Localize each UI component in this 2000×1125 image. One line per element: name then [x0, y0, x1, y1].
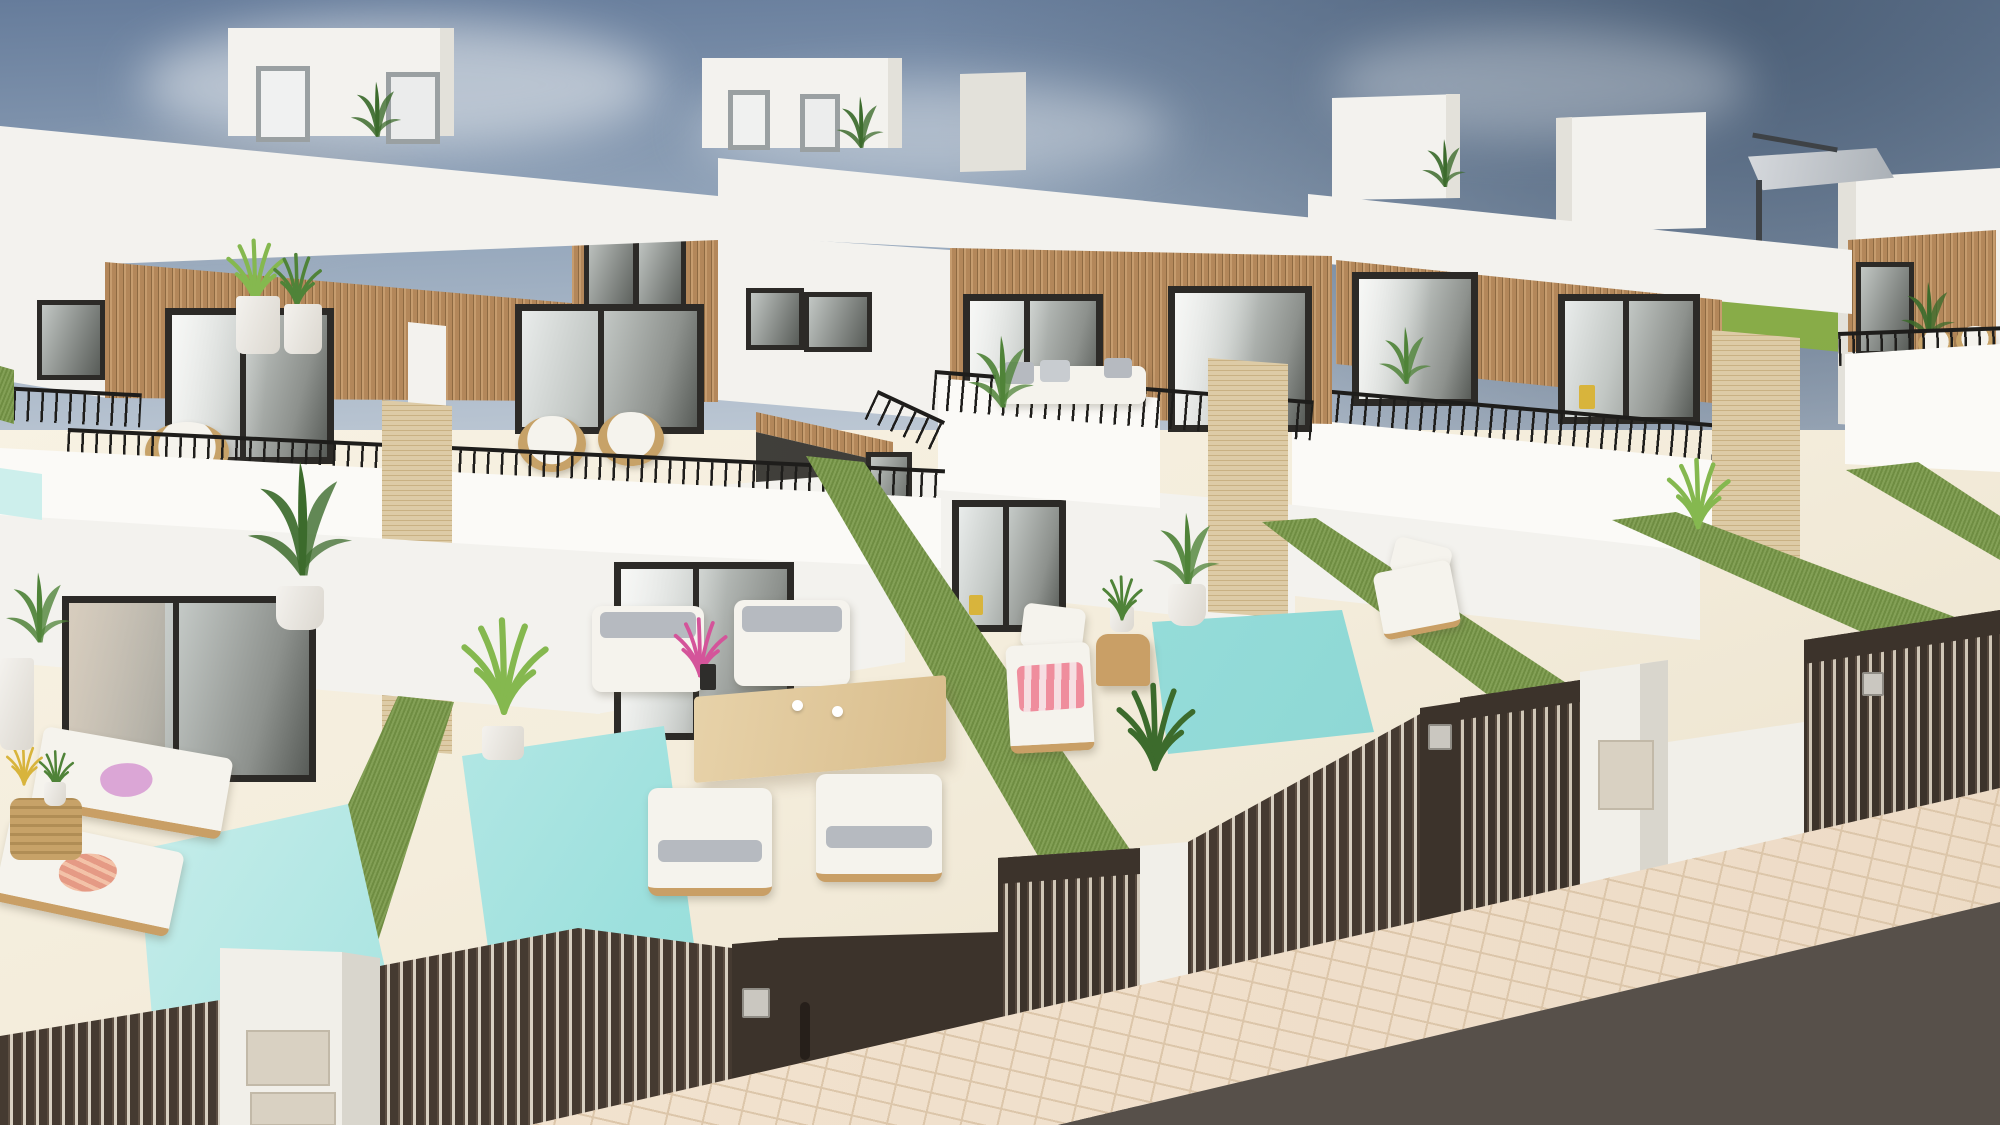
flower-vase [700, 664, 716, 690]
house3-window-right [1558, 294, 1700, 424]
window-mullion [1003, 507, 1009, 625]
palm-by-gate-icon [1108, 664, 1202, 786]
letterbox-panel [250, 1092, 336, 1125]
planter-box [236, 296, 280, 354]
parasol-mast [1756, 180, 1762, 242]
house3-balcony-plant-icon [1374, 312, 1436, 396]
house1-window-right [515, 304, 704, 434]
banana-plant-icon [238, 432, 362, 600]
chair-pillow [826, 826, 932, 848]
coffee-cup [792, 700, 803, 711]
striped-towel [1016, 662, 1085, 712]
sofa-pillow [1040, 360, 1070, 382]
tall-planter [0, 658, 34, 750]
dining-chair-front [816, 774, 942, 882]
dining-chair-front [648, 788, 772, 896]
dining-chair [734, 600, 850, 686]
planter-box [284, 304, 322, 354]
house2-terrace-plant-icon [962, 322, 1040, 418]
gate-handle [800, 1002, 810, 1060]
coffee-cup [832, 706, 843, 717]
house1-roofbox-plant-icon [346, 76, 406, 140]
wicker-side-table [10, 798, 82, 860]
window-mullion [1623, 301, 1629, 417]
palm-plant-icon [452, 584, 556, 744]
small-pot [44, 782, 66, 806]
gate-keypad [742, 988, 770, 1018]
architectural-render-scene [0, 0, 2000, 1125]
gate-keypad [1428, 724, 1452, 750]
plant-pot [276, 586, 324, 630]
banana-plant-icon [0, 548, 76, 664]
chair-pillow [742, 606, 842, 632]
plant-pot [1168, 584, 1206, 626]
house1-side-window [37, 300, 105, 380]
strelitzia-plant-icon [1146, 498, 1226, 598]
house2-roofbox-plant-icon [832, 92, 888, 150]
house1-roof-door [256, 66, 310, 142]
side-table-plant-icon [1098, 572, 1146, 622]
house3-roofbox-plant-icon [1418, 134, 1470, 190]
house2-small-window [746, 288, 804, 350]
gate-keypad [1862, 672, 1884, 696]
house2-small-window [804, 292, 872, 352]
window-mullion [598, 311, 604, 427]
house2-roof-door [728, 90, 770, 150]
yellow-chair-glimpse [1579, 385, 1595, 409]
palm-by-pillar-icon [1660, 440, 1736, 544]
yellow-chair-glimpse [969, 595, 983, 615]
sofa-pillow [1104, 358, 1132, 378]
letterbox-panel [246, 1030, 330, 1086]
planter-box [482, 726, 524, 760]
letterbox-panel-2 [1598, 740, 1654, 810]
chair-pillow [658, 840, 762, 862]
house1-balcony-railing-upper [0, 386, 142, 427]
